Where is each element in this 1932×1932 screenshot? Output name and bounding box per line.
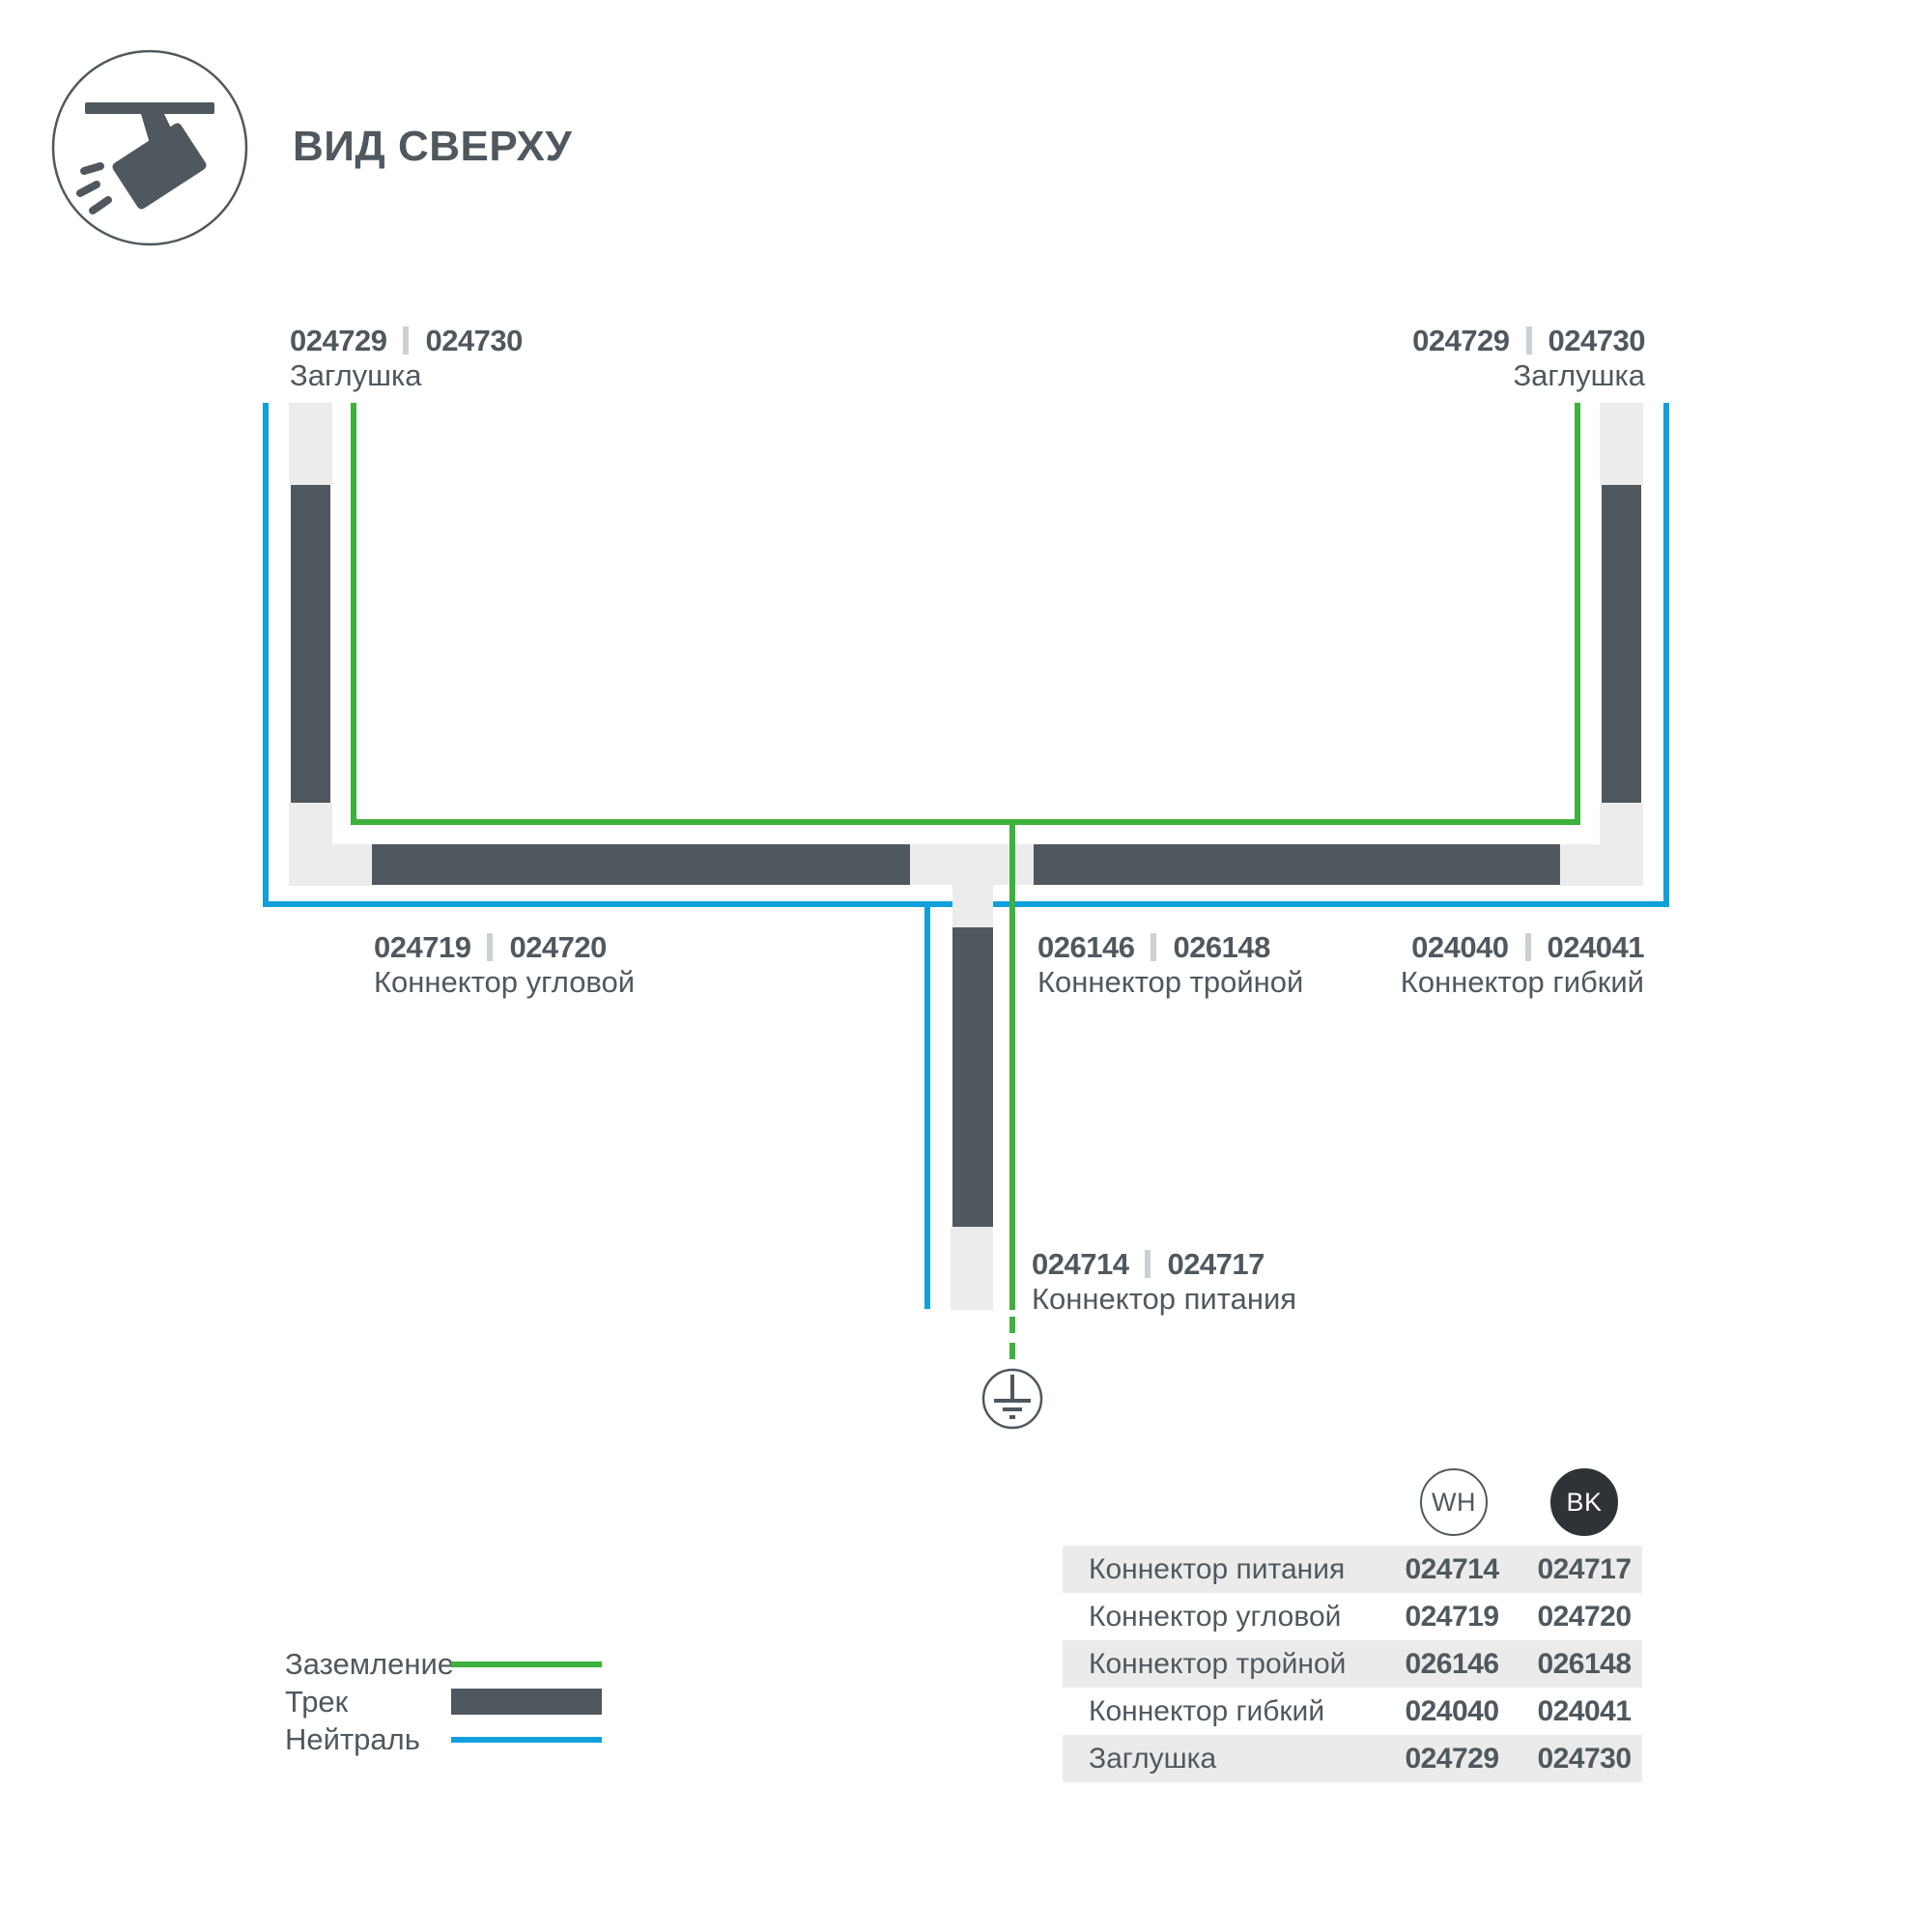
separator [403,327,409,355]
legend-item-ground: Заземление [285,1645,602,1683]
row-name: Коннектор питания [1063,1553,1345,1586]
row-name: Заглушка [1063,1743,1216,1776]
label-codes: 024040024041 [1401,929,1644,965]
separator [1145,1250,1151,1278]
separator [1526,327,1532,355]
separator [1151,933,1156,961]
label-codes: 024729024730 [1412,323,1645,358]
code-wh: 024729 [290,324,386,357]
track-stem [952,927,993,1227]
legend-label: Трек [285,1685,451,1719]
track-left-horizontal [372,844,910,885]
label-name: Коннектор питания [1032,1282,1296,1316]
legend-item-neutral: Нейтраль [285,1720,602,1758]
code-bk: 026148 [1173,930,1269,964]
product-table: WH BK Коннектор питания 024714 024717 Ко… [1063,1546,1642,1782]
badge-bk: BK [1550,1468,1618,1536]
code-bk: 024730 [1548,324,1645,357]
label-flex-connector: 024040024041 Коннектор гибкий [1401,929,1644,999]
row-code-bk: 024730 [1526,1743,1642,1776]
label-tee-connector: 026146026148 Коннектор тройной [1037,929,1303,999]
row-code-wh: 024040 [1394,1695,1510,1728]
label-name: Коннектор гибкий [1401,965,1644,999]
code-bk: 024041 [1548,930,1644,964]
badge-bk-label: BK [1566,1488,1602,1518]
track-spotlight-icon [0,0,270,270]
code-wh: 024714 [1032,1247,1128,1281]
legend-label: Заземление [285,1647,451,1682]
track-right-vertical [1602,485,1641,803]
earth-ground-icon [983,1370,1041,1428]
label-endcap-right: 024729024730 Заглушка [1412,323,1645,392]
code-wh: 024719 [374,930,470,964]
page: ВИД СВЕРХУ 024729024730 Заглушка 0247290… [0,0,1932,1932]
green-line-swatch [451,1662,602,1667]
row-code-wh: 024714 [1394,1553,1510,1586]
label-endcap-left: 024729024730 Заглушка [290,323,523,392]
track-right-horizontal [1034,844,1560,885]
endcap-right [1600,403,1643,485]
page-title: ВИД СВЕРХУ [293,126,572,168]
table-row: Коннектор питания 024714 024717 [1063,1546,1642,1593]
header: ВИД СВЕРХУ [0,0,270,275]
label-codes: 024714024717 [1032,1246,1296,1282]
blue-line-swatch [451,1737,602,1743]
label-name: Заглушка [1412,358,1645,392]
badge-wh: WH [1420,1468,1488,1536]
code-bk: 024717 [1167,1247,1264,1281]
code-wh: 026146 [1037,930,1134,964]
row-name: Коннектор тройной [1063,1648,1346,1681]
row-name: Коннектор угловой [1063,1601,1341,1634]
legend: Заземление Трек Нейтраль [285,1645,602,1758]
label-power-connector: 024714024717 Коннектор питания [1032,1246,1296,1316]
separator [487,933,493,961]
row-code-bk: 024720 [1526,1601,1642,1634]
row-code-wh: 024719 [1394,1601,1510,1634]
label-corner-connector: 024719024720 Коннектор угловой [374,929,635,999]
label-codes: 024719024720 [374,929,635,965]
table-row: Коннектор угловой 024719 024720 [1063,1593,1642,1640]
badge-wh-label: WH [1432,1488,1476,1518]
row-code-bk: 024041 [1526,1695,1642,1728]
legend-item-track: Трек [285,1683,602,1720]
row-code-bk: 026148 [1526,1648,1642,1681]
row-name: Коннектор гибкий [1063,1695,1324,1728]
track-left-vertical [291,485,330,803]
code-wh: 024040 [1411,930,1508,964]
corner-connector-right [1560,803,1643,886]
corner-connector-left [289,803,372,886]
legend-label: Нейтраль [285,1722,451,1757]
row-code-wh: 024729 [1394,1743,1510,1776]
code-bk: 024720 [509,930,606,964]
label-codes: 024729024730 [290,323,523,358]
table-row: Коннектор гибкий 024040 024041 [1063,1688,1642,1735]
label-name: Коннектор угловой [374,965,635,999]
table-row: Заглушка 024729 024730 [1063,1735,1642,1782]
power-connector [951,1227,993,1310]
row-code-wh: 026146 [1394,1648,1510,1681]
code-wh: 024729 [1412,324,1509,357]
separator [1525,933,1531,961]
label-name: Заглушка [290,358,523,392]
row-code-bk: 024717 [1526,1553,1642,1586]
label-name: Коннектор тройной [1037,965,1303,999]
code-bk: 024730 [425,324,522,357]
track-bar-swatch [451,1689,602,1715]
table-row: Коннектор тройной 026146 026148 [1063,1640,1642,1688]
endcap-left [289,403,332,485]
label-codes: 026146026148 [1037,929,1303,965]
